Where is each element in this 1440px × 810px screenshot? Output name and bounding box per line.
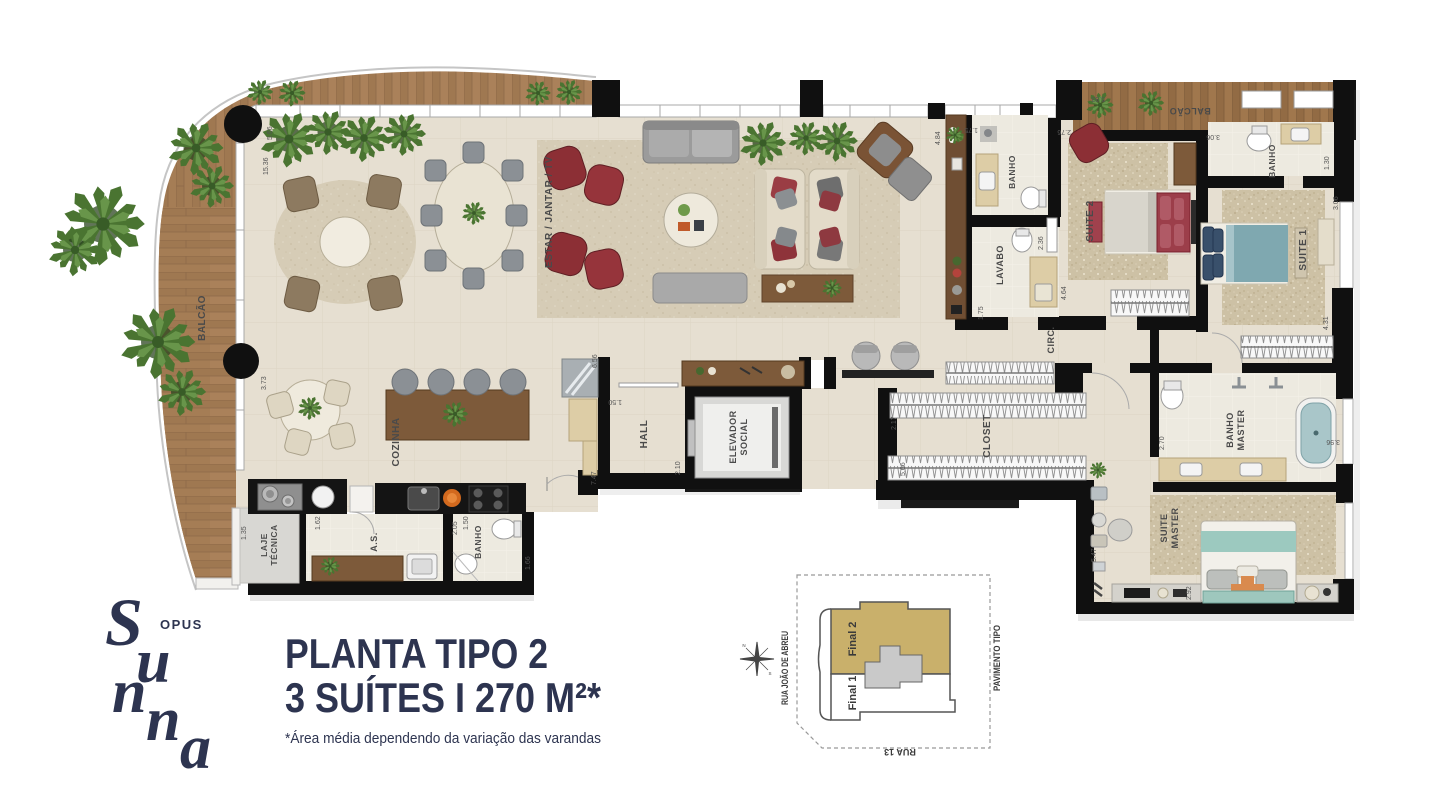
svg-text:Final 1: Final 1 (847, 676, 859, 711)
svg-text:HALL: HALL (639, 420, 650, 449)
svg-text:MASTER: MASTER (1236, 410, 1246, 451)
svg-text:1.66: 1.66 (525, 556, 532, 570)
svg-text:5.93: 5.93 (1091, 95, 1105, 102)
svg-text:BALCÃO: BALCÃO (1169, 106, 1211, 116)
svg-text:2.92: 2.92 (1186, 586, 1193, 600)
svg-text:*Área média dependendo da vari: *Área média dependendo da variação das v… (285, 730, 601, 747)
svg-text:1.75: 1.75 (978, 306, 985, 320)
svg-text:PLANTA TIPO 2: PLANTA TIPO 2 (285, 630, 548, 677)
svg-text:1.75: 1.75 (964, 126, 978, 133)
svg-text:2.36: 2.36 (1038, 236, 1045, 250)
svg-text:TÉCNICA: TÉCNICA (269, 524, 279, 565)
svg-text:1.50: 1.50 (463, 516, 470, 530)
svg-text:SUITE 2: SUITE 2 (1085, 200, 1096, 241)
svg-text:1.62: 1.62 (315, 516, 322, 530)
svg-text:S: S (768, 671, 771, 676)
svg-text:SOCIAL: SOCIAL (739, 418, 749, 455)
svg-text:MASTER: MASTER (1170, 508, 1180, 549)
svg-text:6.56: 6.56 (592, 354, 599, 368)
svg-text:1.30: 1.30 (1324, 156, 1331, 170)
svg-text:Final 2: Final 2 (847, 622, 859, 657)
svg-text:2.76: 2.76 (1057, 128, 1071, 135)
svg-text:5.66: 5.66 (267, 126, 274, 140)
svg-text:5.66: 5.66 (900, 462, 907, 476)
svg-text:15.36: 15.36 (263, 157, 270, 175)
svg-text:PAVIMENTO TIPO: PAVIMENTO TIPO (992, 625, 1002, 691)
svg-text:CLOSET: CLOSET (982, 414, 993, 458)
svg-text:3.06: 3.06 (1206, 133, 1220, 140)
svg-text:SUITE: SUITE (1159, 513, 1169, 542)
svg-text:2.05: 2.05 (452, 521, 459, 535)
svg-text:BANHO: BANHO (1225, 412, 1235, 448)
svg-text:CIRC.: CIRC. (1046, 327, 1056, 354)
svg-text:ELEVADOR: ELEVADOR (728, 410, 738, 463)
svg-text:5.47: 5.47 (1091, 548, 1098, 562)
svg-text:1.35: 1.35 (241, 526, 248, 540)
svg-text:3.73: 3.73 (261, 376, 268, 390)
svg-text:RUA 13: RUA 13 (884, 747, 916, 757)
svg-text:2.70: 2.70 (1159, 436, 1166, 450)
svg-text:BANHO: BANHO (1007, 155, 1017, 189)
svg-text:BANHO: BANHO (473, 525, 483, 559)
svg-text:ESTAR / JANTAR / TV: ESTAR / JANTAR / TV (544, 156, 555, 268)
svg-text:SUITE 1: SUITE 1 (1298, 229, 1309, 270)
svg-text:RUA JOÃO DE ABREU: RUA JOÃO DE ABREU (780, 631, 790, 705)
svg-text:LAVABO: LAVABO (995, 245, 1005, 285)
svg-text:1.50: 1.50 (608, 398, 622, 405)
svg-text:BANHO: BANHO (1267, 144, 1277, 178)
svg-text:4.64: 4.64 (1061, 286, 1068, 300)
svg-text:n: n (112, 658, 146, 726)
svg-text:A.S.: A.S. (369, 532, 379, 552)
svg-text:3.06: 3.06 (1333, 196, 1340, 210)
svg-text:2.17: 2.17 (891, 416, 898, 430)
svg-text:4.84: 4.84 (935, 131, 942, 145)
svg-text:N: N (742, 643, 745, 648)
svg-text:COZINHA: COZINHA (391, 417, 402, 466)
svg-text:n: n (146, 686, 180, 754)
svg-text:BALCÃO: BALCÃO (195, 295, 208, 341)
svg-text:LAJE: LAJE (259, 533, 269, 557)
svg-text:3.96: 3.96 (1326, 438, 1340, 445)
svg-text:3 SUÍTES I 270 M²*: 3 SUÍTES I 270 M²* (285, 674, 602, 721)
svg-text:a: a (180, 714, 211, 782)
svg-text:2.10: 2.10 (675, 461, 682, 475)
svg-text:7.47: 7.47 (591, 471, 598, 485)
svg-text:4.31: 4.31 (1323, 316, 1330, 330)
